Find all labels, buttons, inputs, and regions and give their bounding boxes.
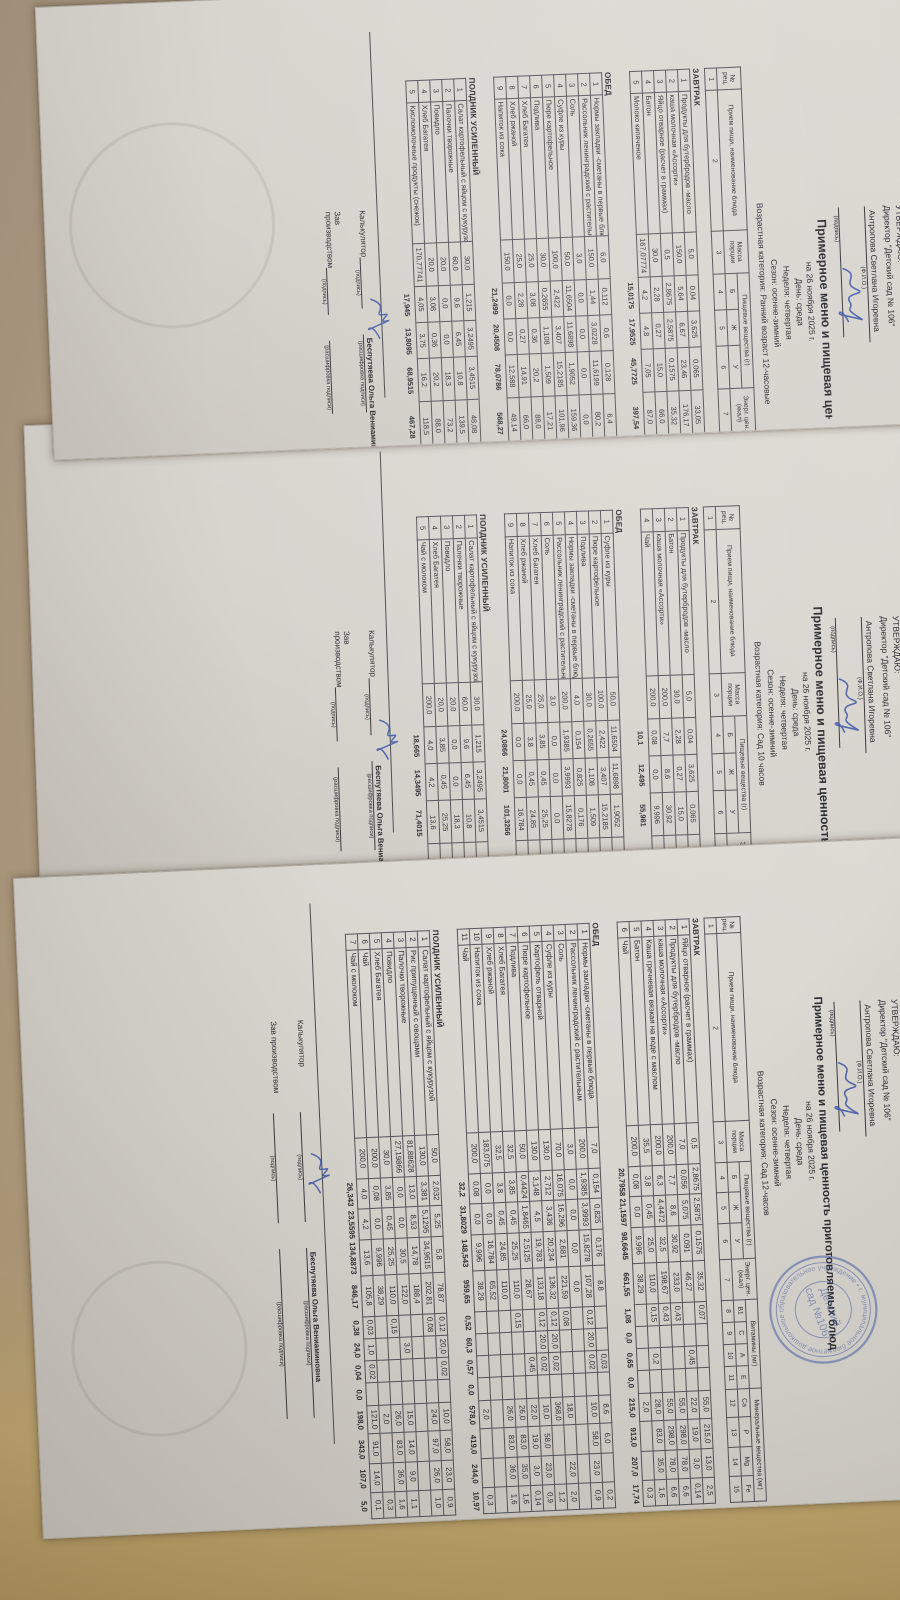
value-cell: 176,17: [679, 390, 693, 441]
value-cell: 2: [588, 511, 601, 534]
decode-caption: (расшифровка подписи): [366, 773, 374, 838]
value-cell: 6,3: [652, 1165, 665, 1196]
header-col-number: 6: [713, 791, 727, 835]
value-cell: 11: [457, 929, 470, 946]
total-cell: 134,8873: [345, 1240, 360, 1277]
value-cell: 4: [640, 509, 653, 532]
calculator-name-line: Беспутяева Ольга Вениаминовна (расшифров…: [371, 761, 385, 850]
total-cell: 23,5595: [344, 1209, 358, 1240]
production-signature-row: Зав производством (подпись) (расшифровка…: [333, 631, 360, 877]
value-cell: 7: [528, 513, 541, 536]
value-cell: 22,0: [526, 1398, 539, 1427]
value-cell: 83,0: [516, 1427, 529, 1458]
value-cell: [380, 1433, 393, 1464]
value-cell: 14,78: [407, 1237, 421, 1274]
calculator-sign-line: (подпись): [300, 1112, 316, 1222]
value-cell: [683, 1324, 696, 1347]
header-col-number: 10: [723, 1344, 736, 1367]
value-cell: 4,0: [570, 678, 584, 722]
value-cell: 10,8: [462, 799, 476, 843]
signatures-block: Калькулятор (подпись) Беспутяева Ольга В…: [333, 630, 387, 877]
value-cell: 1,0: [430, 1489, 443, 1516]
value-cell: 5: [529, 926, 542, 943]
value-cell: 20,2: [429, 358, 443, 401]
calculator-sign-line: (подпись): [359, 257, 372, 308]
director-signature-line: (подпись): [835, 617, 854, 747]
menu-table-header: № рец.Прием пищи, наименование блюдаМасс…: [703, 505, 753, 886]
value-cell: 78,0: [665, 1450, 678, 1479]
value-cell: [640, 1421, 653, 1452]
value-cell: 30,0: [378, 1137, 392, 1178]
value-cell: 0,15: [386, 1315, 399, 1338]
value-cell: 38,29: [632, 1263, 646, 1304]
menu-tables: № рец.Прием пищи, наименование блюдаМасс…: [403, 505, 753, 896]
value-cell: 2,422: [550, 280, 564, 317]
value-cell: 1,6: [506, 1486, 519, 1513]
value-cell: 88,0: [431, 400, 445, 451]
value-cell: 2,422: [595, 721, 608, 758]
calculator-sign-line: (подпись): [368, 678, 381, 736]
total-cell: [403, 516, 417, 539]
value-cell: 0,0: [502, 282, 516, 319]
total-cell: [623, 235, 638, 278]
value-cell: [553, 1455, 566, 1484]
value-cell: 26,0: [514, 1398, 527, 1427]
value-cell: 11,6504: [607, 720, 620, 757]
value-cell: 3,85: [536, 723, 549, 760]
total-cell: 78,0786: [492, 356, 507, 399]
value-cell: 14,0: [404, 1432, 417, 1463]
value-cell: 0,0: [548, 722, 561, 759]
value-cell: 15,8278: [579, 1229, 593, 1266]
value-cell: 1,108: [540, 317, 554, 354]
value-cell: 0,1: [370, 1492, 383, 1519]
production-sign-line: (подпись): [335, 687, 348, 741]
value-cell: 0,065: [689, 347, 703, 390]
header-col-number: 14: [728, 1447, 741, 1476]
value-cell: [574, 1396, 587, 1425]
calculator-signature-row: Калькулятор (подпись) Беспутяева Ольга В…: [357, 210, 378, 438]
value-cell: 81,88628: [402, 1136, 416, 1177]
value-cell: 25,25: [507, 1232, 521, 1269]
value-cell: 5: [541, 75, 554, 98]
value-cell: [417, 1461, 430, 1490]
value-cell: 19,783: [531, 1231, 545, 1268]
value-cell: [493, 1458, 506, 1487]
calculator-label: Калькулятор: [357, 210, 368, 257]
document-sheet-3: Приложение № 8 к СанПиН 2.3/2.4.3590-20 …: [13, 837, 900, 1539]
value-cell: 15,0: [402, 1403, 415, 1432]
value-cell: 0,5: [660, 233, 674, 276]
total-cell: 215,0: [625, 1393, 639, 1422]
value-cell: [492, 1428, 505, 1459]
header-sub: Е: [736, 1366, 749, 1389]
value-cell: 20,234: [543, 1231, 557, 1268]
total-cell: 0,38: [349, 1317, 363, 1340]
value-cell: 48,08: [467, 399, 481, 450]
calculator-label: Калькулятор: [295, 1020, 308, 1112]
total-cell: [487, 240, 502, 283]
value-cell: 97,0: [428, 1431, 441, 1462]
value-cell: 11,6898: [609, 757, 622, 794]
value-cell: 0,2655: [538, 281, 552, 318]
value-cell: 17,21: [543, 396, 557, 447]
value-cell: 0,12: [582, 1306, 595, 1329]
value-cell: [487, 1333, 500, 1356]
decode-caption: (расшифровка подписи): [332, 777, 340, 842]
value-cell: 18,0: [562, 1396, 575, 1425]
value-cell: 6,45: [452, 321, 466, 358]
value-cell: 0,36: [428, 322, 442, 359]
value-cell: 3,0: [689, 1449, 702, 1478]
total-cell: [409, 684, 424, 728]
total-cell: 0,57: [463, 1356, 477, 1379]
value-cell: 0,154: [588, 1168, 601, 1199]
value-cell: 0,0: [564, 1169, 577, 1200]
value-cell: 2: [452, 515, 465, 538]
value-cell: 12,588: [505, 355, 519, 398]
value-cell: 6,0: [600, 1423, 613, 1454]
value-cell: 5: [629, 71, 642, 94]
value-cell: 25,0: [512, 239, 526, 282]
value-cell: 83,0: [392, 1432, 405, 1463]
value-cell: 3: [653, 70, 666, 93]
value-cell: [376, 1360, 389, 1383]
value-cell: [400, 1359, 413, 1382]
value-cell: [494, 1486, 507, 1513]
value-cell: 16,2: [417, 358, 431, 401]
value-cell: [564, 1424, 577, 1455]
value-cell: [498, 1310, 511, 1333]
value-cell: 136,32: [544, 1267, 558, 1308]
value-cell: 3,148: [528, 1171, 541, 1202]
header-mass: Масса порции: [725, 1121, 751, 1163]
total-cell: 13,8095: [402, 323, 417, 360]
header-recipe-no: № рец.: [715, 506, 740, 529]
value-cell: [381, 1463, 394, 1492]
value-cell: 0,0: [568, 1266, 582, 1307]
value-cell: 8: [516, 513, 529, 536]
value-cell: [576, 1424, 589, 1455]
total-cell: [443, 929, 457, 946]
value-cell: 16,296: [553, 1200, 566, 1231]
value-cell: 0,2: [648, 1348, 661, 1371]
value-cell: 4,8: [639, 313, 653, 350]
total-cell: [480, 77, 494, 100]
value-cell: 0,0: [513, 760, 526, 797]
value-cell: 0,3: [642, 1480, 655, 1507]
value-cell: 1,215: [462, 284, 476, 321]
value-cell: [474, 1311, 487, 1334]
value-cell: 7,0: [586, 1128, 600, 1169]
value-cell: 2: [664, 508, 677, 531]
value-cell: 3,0: [529, 1456, 542, 1485]
value-cell: 25,0: [524, 239, 538, 282]
value-cell: 19,0: [687, 1419, 700, 1450]
value-cell: [659, 1325, 672, 1348]
value-cell: 6: [617, 922, 630, 939]
value-cell: 15,8278: [562, 796, 576, 840]
total-cell: [613, 1126, 628, 1167]
value-cell: 1,2: [554, 1484, 567, 1511]
value-cell: 5,8: [431, 1236, 445, 1273]
value-cell: [499, 1332, 512, 1355]
value-cell: 0,2655: [584, 721, 597, 758]
value-cell: [412, 1358, 425, 1381]
value-cell: 14,0: [369, 1464, 382, 1493]
value-cell: 0,825: [589, 1198, 602, 1229]
value-cell: 23,0: [589, 1454, 602, 1483]
production-signature-row: Зав производством (подпись) (расшифровка…: [323, 211, 351, 440]
value-cell: 8,8: [592, 1265, 606, 1306]
value-cell: 200,0: [646, 675, 660, 719]
value-cell: 0,0: [448, 726, 461, 763]
total-cell: [332, 934, 346, 951]
value-cell: 20,0: [583, 1328, 596, 1351]
value-cell: 2,8675: [688, 1163, 701, 1194]
value-cell: 35,0: [517, 1457, 530, 1486]
value-cell: 110,0: [496, 1269, 510, 1310]
value-cell: 233,0: [668, 1262, 682, 1303]
value-cell: 10,8: [453, 357, 467, 400]
value-cell: 0,03: [362, 1316, 375, 1339]
value-cell: 0,15: [510, 1309, 523, 1332]
value-cell: 298,0: [675, 1419, 688, 1450]
value-cell: [685, 1368, 698, 1391]
value-cell: [411, 1336, 424, 1359]
header-sub: Ж: [726, 309, 740, 346]
value-cell: 8: [505, 76, 518, 99]
value-cell: 1,6: [654, 1479, 667, 1506]
value-cell: 0,0: [577, 352, 591, 395]
value-cell: 7,7: [664, 1165, 677, 1196]
header-col-number: 11: [724, 1366, 737, 1389]
header-sub: У: [728, 345, 742, 388]
header-col-number: 13: [726, 1417, 739, 1448]
sign-caption: (подпись): [296, 1154, 303, 1180]
value-cell: 0,0: [549, 759, 562, 796]
value-cell: 4,2: [358, 1209, 371, 1240]
value-cell: 1,9385: [560, 722, 573, 759]
production-name-line: (расшифровка подписи): [329, 341, 343, 414]
value-cell: 7,0: [674, 1124, 688, 1165]
value-cell: 0,45: [641, 1196, 654, 1227]
total-cell: 198,0: [353, 1406, 367, 1435]
value-cell: 58,0: [588, 1423, 601, 1454]
value-cell: 4: [564, 511, 577, 534]
value-cell: 23,46: [677, 348, 691, 391]
value-cell: 0,45: [382, 1208, 395, 1239]
value-cell: 0,0: [512, 723, 525, 760]
value-cell: 58,0: [440, 1430, 453, 1461]
header-col-number: 12: [725, 1389, 738, 1418]
total-cell: 244,0: [468, 1459, 482, 1488]
total-cell: 0,0: [622, 1327, 636, 1350]
value-cell: 0,0: [629, 1197, 642, 1228]
value-cell: [577, 1454, 590, 1483]
value-cell: 3,0: [562, 1129, 576, 1170]
total-cell: 419,0: [466, 1429, 480, 1460]
value-cell: 0,5: [686, 1123, 700, 1164]
value-cell: 3,75: [416, 322, 430, 359]
value-cell: 368,0: [550, 1397, 563, 1426]
value-cell: 19,0: [528, 1426, 541, 1457]
value-cell: 9,6: [460, 725, 473, 762]
total-cell: 17,945: [401, 287, 416, 324]
value-cell: 4,5: [529, 1201, 542, 1232]
production-label: Зав производством: [323, 211, 343, 268]
header-col-number: 1: [703, 507, 716, 530]
signatures-block: Калькулятор (подпись) Беспутяева Ольга В…: [323, 210, 378, 440]
header-sub: А: [735, 1344, 748, 1367]
value-cell: 200,0: [422, 683, 436, 727]
value-cell: 3,381: [416, 1176, 429, 1207]
value-cell: 0,45: [437, 763, 450, 800]
value-cell: [418, 1490, 431, 1517]
value-cell: [561, 1374, 574, 1397]
value-cell: [413, 1381, 426, 1404]
total-cell: 32,2: [455, 1174, 469, 1205]
production-sign-line: (подпись): [273, 1113, 289, 1223]
value-cell: 150,0: [672, 233, 686, 276]
value-cell: [489, 1377, 502, 1400]
value-cell: [559, 1329, 572, 1352]
value-cell: 0,0: [394, 1207, 407, 1238]
value-cell: 3,8: [524, 723, 537, 760]
header-col-number: 4: [713, 273, 727, 310]
value-cell: 25,0: [643, 1226, 657, 1263]
value-cell: 9: [493, 77, 506, 100]
value-cell: 1,6: [518, 1485, 531, 1512]
total-cell: 0,0: [352, 1384, 366, 1407]
calculator-label: Калькулятор: [367, 630, 378, 678]
value-cell: 2,0: [378, 1404, 391, 1433]
value-cell: 23,0: [441, 1460, 454, 1489]
total-cell: 913,0: [626, 1422, 640, 1453]
sign-caption: (подпись): [354, 270, 361, 296]
value-cell: 2: [441, 79, 454, 102]
total-cell: 18,665: [410, 727, 424, 765]
value-cell: 3,85: [380, 1177, 393, 1208]
total-cell: [627, 509, 641, 532]
value-cell: 4: [541, 925, 554, 942]
value-cell: 105,8: [361, 1276, 375, 1317]
value-cell: 0,08: [368, 1178, 381, 1209]
value-cell: 200,0: [574, 1128, 588, 1169]
value-cell: 0,27: [673, 755, 686, 792]
value-cell: [388, 1359, 401, 1382]
value-cell: 26,0: [429, 1461, 442, 1490]
value-cell: 122,0: [397, 1274, 411, 1315]
value-cell: 30,92: [667, 1225, 681, 1262]
value-cell: 5,0: [684, 232, 698, 275]
header-mass: Масса порции: [723, 230, 749, 273]
value-cell: 3: [653, 920, 666, 937]
value-cell: 6: [540, 512, 553, 535]
header-col-number: 7: [718, 388, 732, 439]
menu-document-3: Приложение № 8 к СанПиН 2.3/2.4.3590-20 …: [14, 838, 900, 1538]
value-cell: [437, 1379, 450, 1402]
value-cell: 3,0228: [587, 315, 601, 352]
value-cell: 78,0: [677, 1450, 690, 1479]
value-cell: 1: [600, 510, 613, 533]
total-cell: 0,52: [461, 1312, 475, 1335]
value-cell: 2,5125: [519, 1232, 533, 1269]
value-cell: 0,15: [646, 1303, 659, 1326]
value-cell: 3,0: [572, 237, 586, 280]
approve-block: УТВЕРЖДАЮ: Директор "Детский сад № 106" …: [835, 616, 900, 848]
value-cell: 30,0: [670, 675, 684, 719]
value-cell: 11,6898: [563, 316, 577, 353]
value-cell: 0,3: [382, 1491, 395, 1518]
value-cell: 11,6504: [562, 280, 576, 317]
total-cell: [603, 922, 617, 939]
value-cell: [594, 1306, 607, 1329]
value-cell: 1,9052: [610, 794, 624, 838]
value-cell: [414, 1403, 427, 1432]
value-cell: 2,8675: [662, 276, 676, 313]
value-cell: 1,509: [586, 795, 600, 839]
total-cell: 21,8001: [499, 761, 513, 799]
header-sub: Б: [722, 716, 735, 753]
value-cell: 121,0: [367, 1405, 380, 1434]
calculator-signature-row: Калькулятор (подпись) Беспутяева Ольга В…: [295, 1020, 329, 1518]
value-cell: 65,52: [485, 1270, 499, 1311]
total-cell: 343,0: [354, 1434, 368, 1465]
value-cell: 0,154: [572, 721, 585, 758]
value-cell: 0,08: [558, 1307, 571, 1330]
value-cell: 32,5: [490, 1132, 504, 1173]
value-cell: 6,45: [461, 762, 474, 799]
value-cell: 7,7: [659, 718, 672, 755]
value-cell: 0,0: [565, 1199, 578, 1230]
value-cell: [697, 1368, 710, 1391]
value-cell: 3,08: [526, 281, 540, 318]
value-cell: 2: [405, 931, 418, 948]
value-cell: 0,08: [468, 1173, 481, 1204]
value-cell: 0,36: [528, 318, 542, 355]
menu-document-1: УТВЕРЖДАЮ: Директор "Детский сад № 106" …: [36, 0, 900, 459]
value-cell: 0,0: [480, 1173, 493, 1204]
value-cell: 8,6: [661, 755, 674, 792]
value-cell: 5,1295: [418, 1206, 431, 1237]
value-cell: 0,112: [598, 278, 612, 315]
value-cell: [416, 1431, 429, 1462]
total-cell: [392, 80, 406, 103]
value-cell: 0,056: [676, 1164, 689, 1195]
value-cell: 0,4424: [516, 1171, 529, 1202]
value-cell: [649, 1370, 662, 1393]
value-cell: [673, 1369, 686, 1392]
value-cell: 5: [405, 80, 418, 103]
value-cell: 7: [517, 76, 530, 99]
value-cell: 20,0: [446, 682, 460, 726]
value-cell: 167,07774: [636, 234, 650, 277]
value-cell: 10,0: [538, 1397, 551, 1426]
value-cell: 4,2: [638, 277, 652, 314]
value-cell: 73,2: [443, 400, 457, 451]
value-cell: [523, 1331, 536, 1354]
value-cell: 5: [416, 517, 429, 540]
value-cell: 33,05: [691, 389, 705, 440]
value-cell: 0,12: [534, 1308, 547, 1331]
value-cell: 26,0: [390, 1404, 403, 1433]
value-cell: 0,14: [690, 1477, 703, 1504]
value-cell: 55,0: [698, 1390, 711, 1419]
header-kcal: Энерг. цен. (ккал): [730, 387, 756, 438]
value-cell: 2,28: [650, 276, 664, 313]
value-cell: 5: [369, 933, 382, 950]
